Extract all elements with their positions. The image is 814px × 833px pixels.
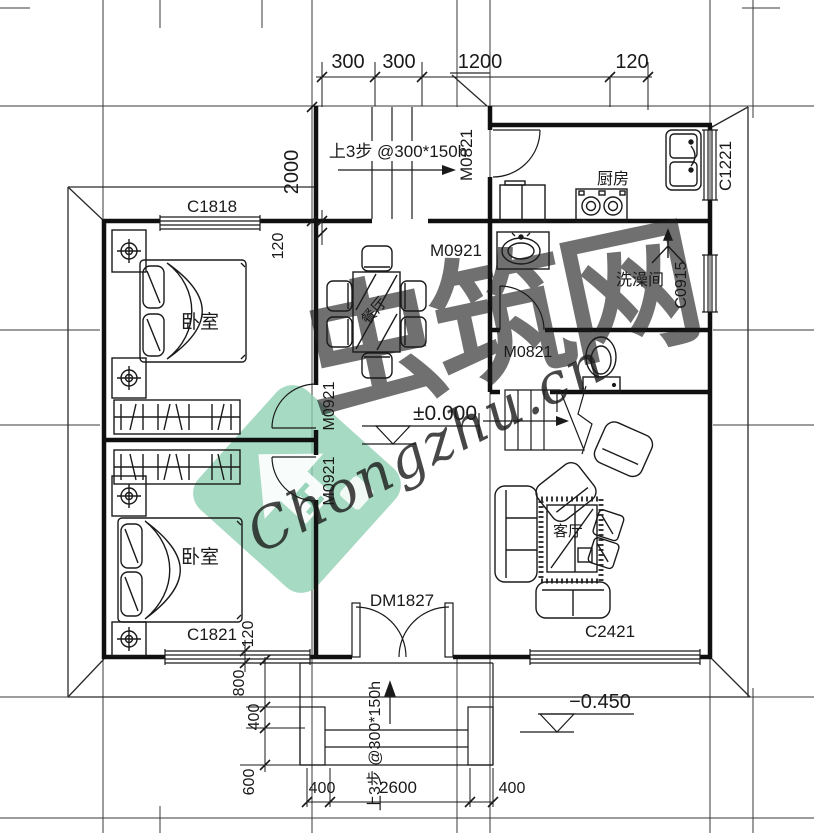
entry-porch-steps [300,663,493,765]
stairs-upper [328,107,470,219]
dim-label: 120 [270,233,287,260]
bedroom-bottom-furniture [118,518,242,622]
room-label-bedroom-bottom: 卧室 [181,546,219,568]
entry-direction-arrow-icon [385,682,395,696]
nightstands [112,230,146,656]
window-label: C1221 [716,141,735,191]
nightstand-lamp-icon [112,622,146,656]
level-marker-outdoor [520,714,634,732]
door-kitchen-m0821 [493,130,540,177]
dim-label: 800 [231,670,248,697]
dim-label: 1200 [458,51,503,73]
dim-label: 300 [382,51,415,73]
floor-plan-drawing: 300 300 1200 120 2000 上3步 @300*150h M082… [0,0,814,833]
floor-plan-page: 300 300 1200 120 2000 上3步 @300*150h M082… [0,0,814,833]
window-label: C1818 [187,197,237,216]
dim-label: 2600 [379,778,417,797]
dim-label: 2000 [281,150,303,195]
door-label: DM1827 [370,591,434,610]
window-label: C2421 [585,622,635,641]
door-entry-dm1827 [352,603,453,657]
bedroom-top-furniture [140,260,246,362]
nightstand-lamp-icon [112,230,146,272]
room-label-kitchen: 厨房 [597,170,629,188]
stair-direction-arrow-icon [442,165,456,175]
level-label-outdoor: −0.450 [569,691,631,713]
window-label: C1821 [187,625,237,644]
nightstand-lamp-icon [112,358,146,398]
living-room-set [495,419,656,618]
stair-note: 上3步 @300*150h [329,142,467,161]
fridge-icon [500,181,545,222]
dim-label: 300 [331,51,364,73]
dim-label: 120 [240,621,257,648]
dimension-wall-120-top [317,210,327,245]
room-label-living: 客厅 [553,523,583,540]
dim-label: 400 [246,704,263,731]
watermark-text: 虫筑网 Chongzhu.cn [237,200,709,567]
room-label-bedroom-top: 卧室 [181,311,219,333]
window-c1818 [160,215,260,231]
kitchen-sink-icon [666,130,701,190]
wardrobe-hanging-clothes-icon [114,400,240,434]
dim-label: 600 [241,769,258,796]
dim-label: 120 [615,51,648,73]
nightstand-lamp-icon [112,476,146,516]
door-label: M0821 [457,129,476,181]
dim-label: 400 [309,780,336,797]
window-c2421 [530,649,700,665]
dim-label: 400 [499,780,526,797]
window-c1821 [165,649,310,665]
